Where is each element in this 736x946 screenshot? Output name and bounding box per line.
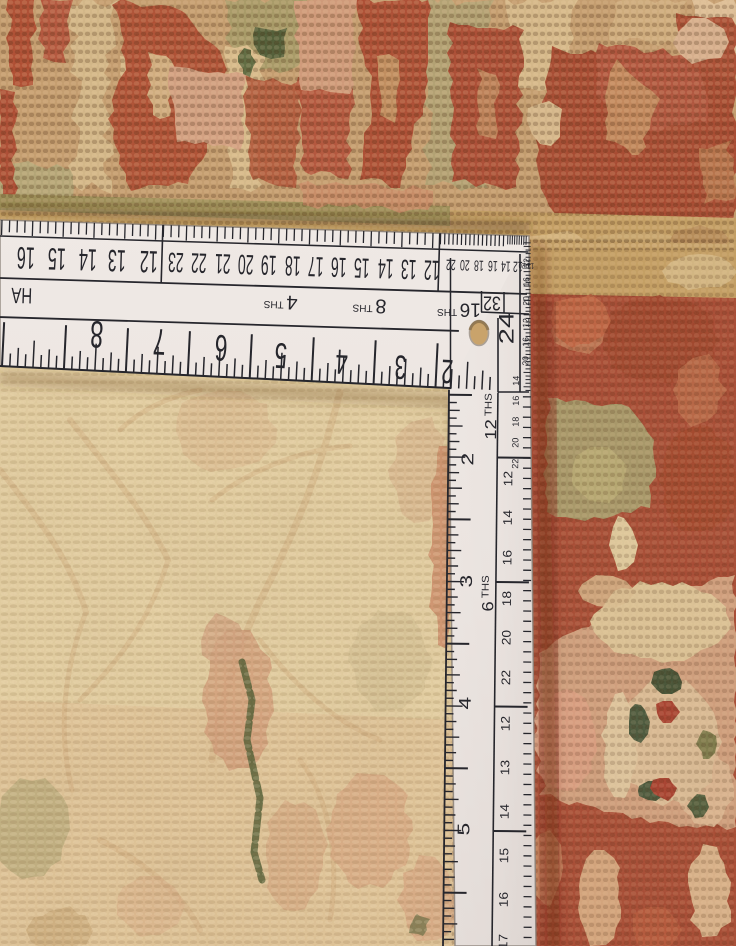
svg-text:12: 12: [501, 471, 515, 486]
svg-text:18: 18: [284, 250, 301, 282]
svg-text:4: 4: [335, 341, 349, 380]
svg-text:2: 2: [459, 453, 478, 466]
svg-text:16: 16: [496, 892, 510, 907]
svg-text:18: 18: [511, 417, 521, 427]
svg-text:19: 19: [260, 249, 277, 281]
svg-text:7: 7: [152, 320, 167, 363]
svg-text:17: 17: [496, 934, 510, 946]
svg-text:18: 18: [500, 591, 514, 606]
svg-text:16: 16: [500, 550, 514, 565]
svg-text:12: 12: [521, 318, 531, 328]
svg-text:4: 4: [456, 697, 475, 710]
svg-text:12: 12: [423, 254, 440, 286]
svg-text:13: 13: [498, 760, 512, 775]
svg-text:13: 13: [107, 242, 126, 276]
svg-text:21: 21: [215, 248, 232, 280]
svg-text:16: 16: [488, 257, 498, 274]
svg-text:15: 15: [47, 241, 66, 275]
svg-text:14: 14: [377, 253, 394, 285]
svg-text:HA: HA: [11, 283, 33, 308]
svg-text:20: 20: [521, 296, 531, 306]
svg-text:23: 23: [168, 246, 185, 278]
svg-text:22: 22: [499, 670, 513, 685]
svg-text:20: 20: [520, 356, 530, 366]
svg-text:14: 14: [497, 804, 511, 819]
svg-text:15: 15: [353, 252, 370, 284]
svg-text:24: 24: [495, 312, 518, 345]
svg-text:22: 22: [191, 247, 208, 279]
svg-text:6: 6: [214, 326, 229, 369]
svg-text:3: 3: [394, 348, 408, 387]
svg-text:2: 2: [440, 352, 454, 391]
svg-text:20: 20: [460, 256, 470, 273]
svg-text:20: 20: [499, 630, 513, 645]
svg-text:14: 14: [500, 510, 514, 525]
svg-text:12: 12: [521, 258, 531, 268]
svg-text:20: 20: [510, 438, 520, 448]
svg-text:17: 17: [307, 251, 324, 283]
svg-text:16: 16: [330, 251, 347, 283]
svg-text:15: 15: [497, 848, 511, 863]
svg-text:5: 5: [274, 335, 288, 375]
svg-text:12: 12: [139, 243, 158, 277]
svg-text:13: 13: [400, 253, 417, 285]
svg-text:16: 16: [511, 396, 521, 406]
svg-text:20: 20: [238, 248, 255, 280]
svg-text:14: 14: [501, 258, 511, 275]
svg-text:16: 16: [16, 240, 35, 274]
svg-text:8: 8: [89, 313, 104, 357]
svg-text:3: 3: [458, 575, 477, 588]
svg-text:12: 12: [498, 716, 512, 731]
svg-text:16: 16: [520, 337, 530, 347]
svg-text:18: 18: [474, 257, 484, 274]
svg-text:22: 22: [510, 459, 520, 469]
svg-text:5: 5: [455, 823, 474, 836]
svg-text:16: 16: [521, 277, 531, 287]
svg-text:14: 14: [78, 241, 97, 275]
